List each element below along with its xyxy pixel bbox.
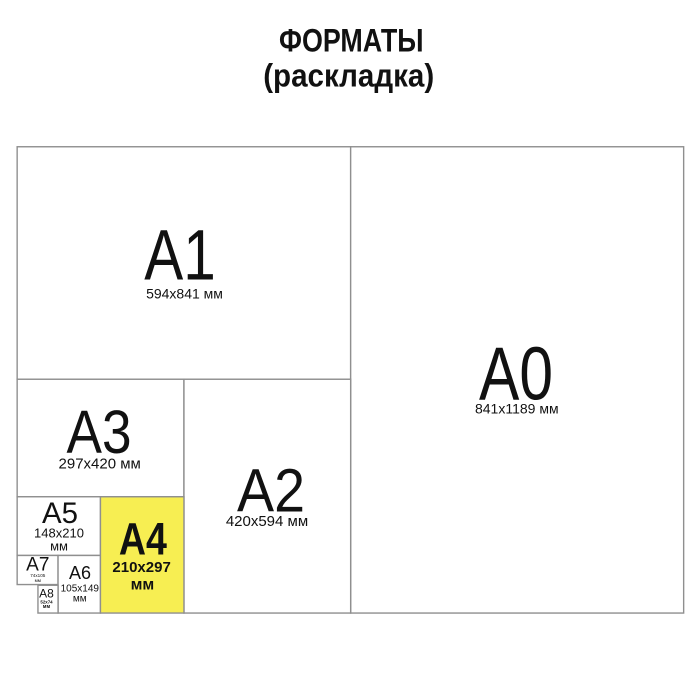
svg-text:мм: мм [35,578,41,583]
svg-text:мм: мм [73,594,87,605]
svg-text:мм: мм [50,539,68,554]
svg-text:мм: мм [43,604,51,610]
svg-text:297х420 мм: 297х420 мм [59,455,141,472]
svg-text:А8: А8 [39,587,54,601]
svg-text:841х1189 мм: 841х1189 мм [475,401,559,417]
svg-text:(раскладка): (раскладка) [263,57,434,93]
svg-text:А6: А6 [69,563,91,583]
svg-text:ФОРМАТЫ: ФОРМАТЫ [279,23,424,59]
svg-text:420х594 мм: 420х594 мм [226,513,308,530]
svg-text:А1: А1 [144,217,216,296]
svg-text:мм: мм [131,577,155,594]
svg-text:А4: А4 [119,514,167,565]
svg-text:594х841 мм: 594х841 мм [146,286,223,302]
svg-text:210х297: 210х297 [112,559,170,576]
